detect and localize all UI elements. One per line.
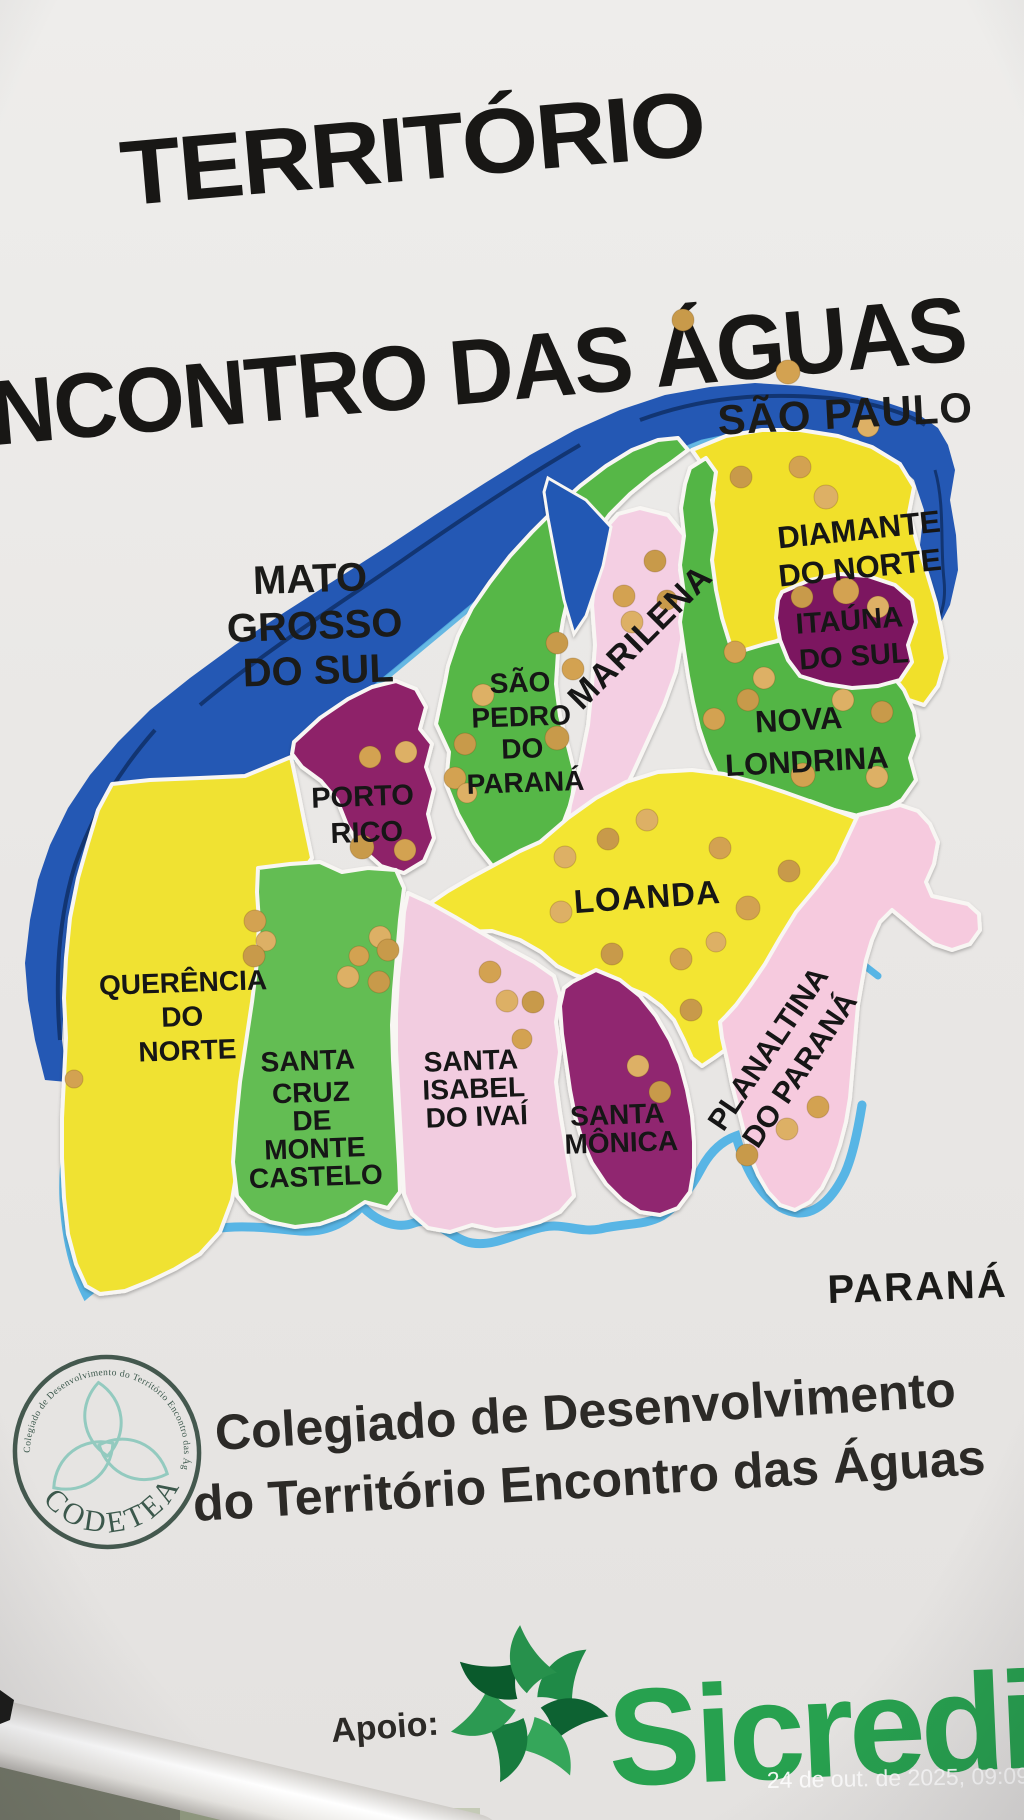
photo-vignette (0, 0, 1024, 1820)
poster-canvas: TERRITÓRIO ENCONTRO DAS ÁGUAS (0, 0, 1024, 1820)
poster-photo: TERRITÓRIO ENCONTRO DAS ÁGUAS (0, 0, 1024, 1820)
